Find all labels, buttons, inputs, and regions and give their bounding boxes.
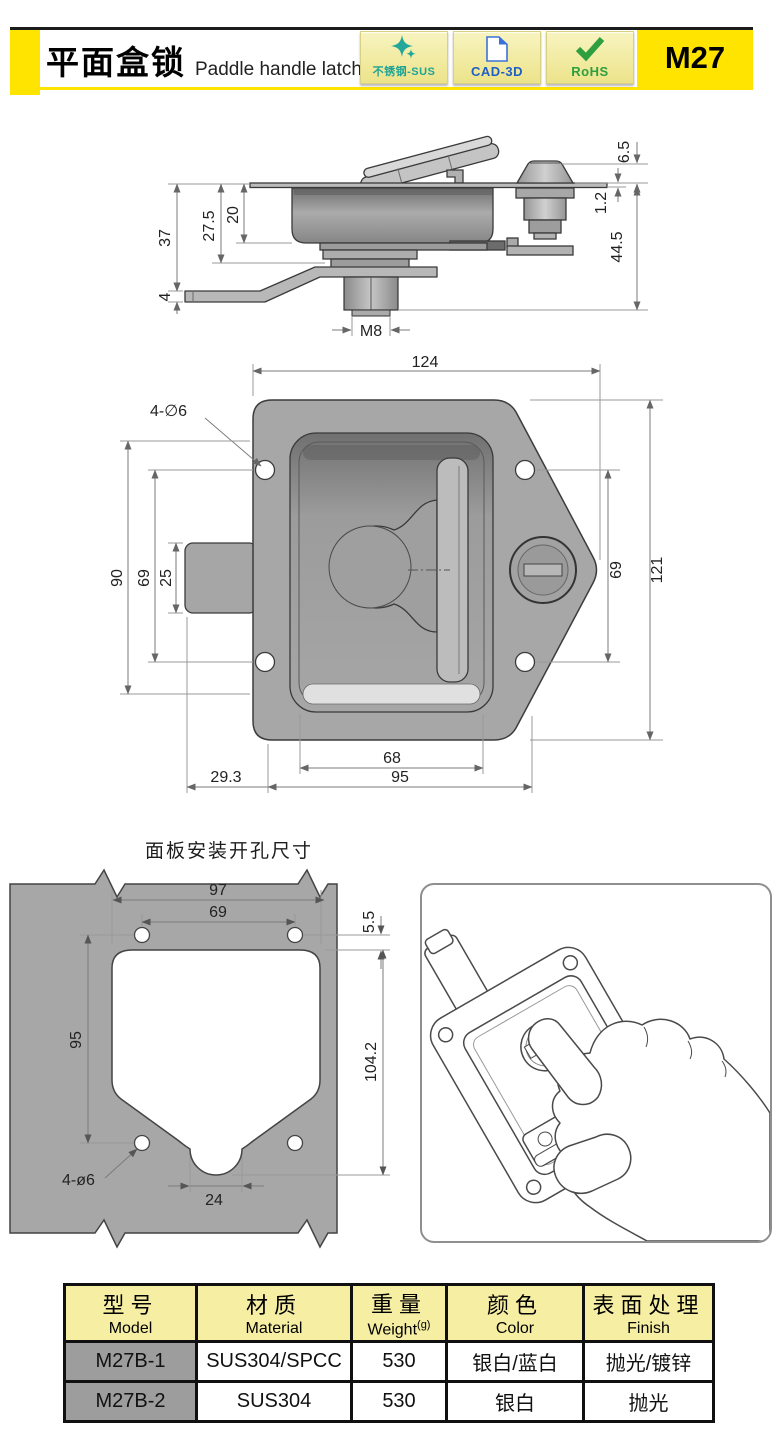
dim-label: 44.5	[609, 231, 626, 262]
badge-label: RoHS	[571, 64, 608, 79]
cell-color: 银白/蓝白	[447, 1342, 584, 1382]
header-en: Material	[198, 1320, 350, 1338]
header-yellow-tab	[10, 30, 40, 95]
mounting-hole	[516, 653, 535, 672]
dim-label: 124	[412, 355, 439, 371]
dim-label: 104.2	[363, 1042, 380, 1082]
cutout-title: 面板安装开孔尺寸	[145, 836, 313, 863]
dim-label: 25	[158, 569, 175, 587]
spec-table: 型号 Model 材质 Material 重量 Weight(g) 颜色 Col…	[63, 1283, 715, 1423]
table-row: M27B-1 SUS304/SPCC 530 银白/蓝白 抛光/镀锌	[65, 1342, 714, 1382]
dim-label: 69	[608, 561, 625, 579]
header-cn: 表面处理	[585, 1288, 712, 1320]
usage-illustration	[420, 883, 772, 1243]
handle-hook	[447, 170, 463, 183]
cutout-hole	[288, 928, 303, 943]
dim-label: 1.2	[593, 192, 610, 214]
header-white-panel: 平面盒锁 Paddle handle latch 不锈钢-SUS	[40, 30, 637, 87]
header-cn: 材质	[198, 1288, 350, 1320]
hand-illustration	[529, 1019, 770, 1241]
header-en: Color	[448, 1320, 582, 1338]
mounting-hole	[256, 653, 275, 672]
dim-label: 29.3	[210, 769, 241, 786]
dim-label: 68	[383, 750, 401, 767]
weight-unit: (g)	[417, 1319, 430, 1331]
table-header-row: 型号 Model 材质 Material 重量 Weight(g) 颜色 Col…	[65, 1285, 714, 1342]
page-title-chinese: 平面盒锁	[46, 36, 186, 84]
col-header-model: 型号 Model	[65, 1285, 197, 1342]
dim-label: 5.5	[361, 911, 378, 933]
cell-model: M27B-2	[65, 1382, 197, 1422]
header-cn: 重量	[353, 1287, 445, 1319]
col-header-weight: 重量 Weight(g)	[352, 1285, 447, 1342]
header-en: Model	[66, 1320, 195, 1338]
latch-tongue	[185, 543, 257, 613]
dim-label: 6.5	[616, 141, 633, 163]
badge-label: CAD-3D	[471, 64, 523, 79]
cell-model: M27B-1	[65, 1342, 197, 1382]
badge-cad-3d: CAD-3D	[453, 31, 541, 84]
cutout-hole	[135, 1136, 150, 1151]
cutout-hole	[288, 1136, 303, 1151]
dim-label: 90	[109, 569, 126, 587]
cutout-hole	[135, 928, 150, 943]
dim-label: 69	[209, 904, 227, 921]
header-cn: 颜色	[448, 1288, 582, 1320]
flange-side	[250, 183, 607, 188]
header-en: Finish	[585, 1320, 712, 1338]
lock-cylinder-side	[507, 161, 574, 255]
dim-label: 95	[68, 1031, 85, 1049]
keyhole	[510, 537, 576, 603]
checkmark-icon	[574, 34, 606, 64]
cell-material: SUS304/SPCC	[197, 1342, 352, 1382]
badge-rohs: RoHS	[546, 31, 634, 84]
hand-operating-latch-drawing	[422, 885, 770, 1241]
col-header-finish: 表面处理 Finish	[584, 1285, 714, 1342]
cell-material: SUS304	[197, 1382, 352, 1422]
cell-finish: 抛光/镀锌	[584, 1342, 714, 1382]
cell-color: 银白	[447, 1382, 584, 1422]
mounting-hole	[516, 461, 535, 480]
model-code: M27	[637, 30, 753, 87]
page-title-english: Paddle handle latch	[195, 59, 362, 81]
dim-label: 121	[649, 557, 666, 584]
dim-label: 97	[209, 882, 227, 899]
certification-badges: 不锈钢-SUS CAD-3D RoHS	[360, 31, 634, 84]
dim-label: 4	[157, 292, 174, 301]
dim-label: 37	[157, 229, 174, 247]
dim-label: 4-∅6	[150, 403, 187, 420]
dim-label: 27.5	[201, 210, 218, 241]
sparkle-icon	[388, 33, 420, 63]
latch-body-side	[292, 188, 493, 243]
header-en: Weight(g)	[353, 1319, 445, 1339]
cell-weight: 530	[352, 1382, 447, 1422]
dim-label: M8	[360, 323, 382, 340]
badge-stainless-sus: 不锈钢-SUS	[360, 31, 448, 84]
badge-label: 不锈钢-SUS	[373, 63, 436, 79]
cell-finish: 抛光	[584, 1382, 714, 1422]
side-view-drawing: 37 27.5 20 4 M8 6.5 1.2 44.5	[120, 118, 665, 363]
front-view-drawing: 124 4-∅6 90 69 25 69 121 68 95 29.3	[105, 355, 670, 805]
cell-weight: 530	[352, 1342, 447, 1382]
table-row: M27B-2 SUS304 530 银白 抛光	[65, 1382, 714, 1422]
dim-label: 69	[136, 569, 153, 587]
dim-label: 4-ø6	[62, 1172, 95, 1189]
header-cn: 型号	[66, 1288, 195, 1320]
dim-label: 20	[225, 206, 242, 224]
col-header-material: 材质 Material	[197, 1285, 352, 1342]
col-header-color: 颜色 Color	[447, 1285, 584, 1342]
panel-cutout-drawing: 97 69 5.5 95 104.2 24 4-ø6	[0, 862, 455, 1267]
cad-document-icon	[484, 34, 510, 64]
dim-label: 95	[391, 769, 409, 786]
latch-arm-side	[185, 267, 437, 302]
dim-label: 24	[205, 1192, 223, 1209]
